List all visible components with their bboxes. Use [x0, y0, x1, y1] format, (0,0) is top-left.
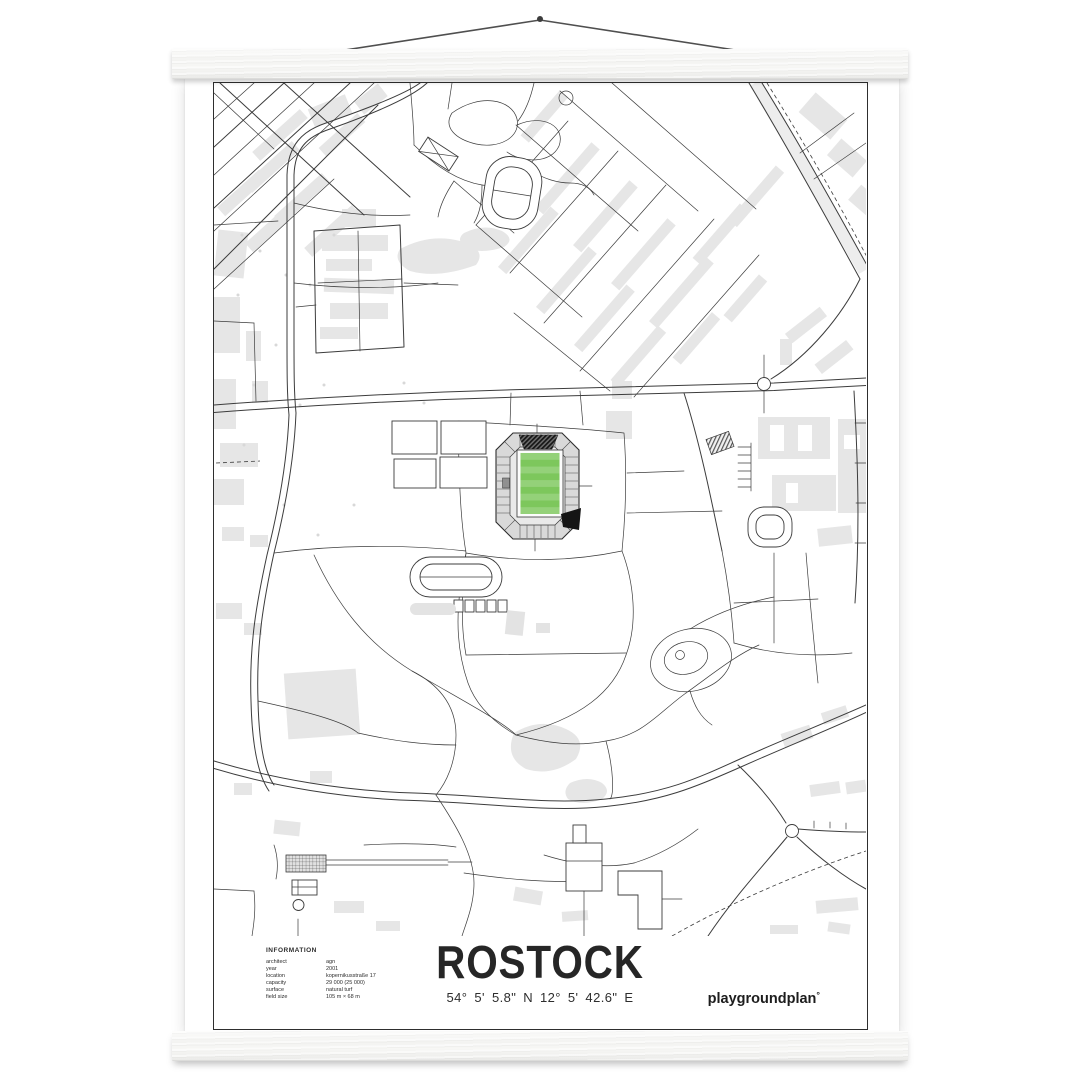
bottom-hanger-bar: [172, 1031, 908, 1061]
velodrome-track: [479, 153, 546, 233]
top-hanger-bar: [172, 49, 908, 79]
sports-court: [394, 459, 436, 488]
stadium-tunnel: [503, 478, 510, 488]
brand-degree-mark: °: [816, 990, 820, 1000]
sports-court: [392, 421, 437, 454]
brand-text: playgroundplan: [708, 991, 817, 1007]
string-line: [332, 20, 748, 52]
caption-area: INFORMATION architect agn year 2001 loca…: [214, 936, 866, 1029]
sports-court: [441, 421, 486, 454]
poster-title: ROSTOCK: [253, 938, 827, 986]
sports-court: [440, 457, 487, 488]
stadium: [496, 424, 592, 551]
brand-logo: playgroundplan°: [708, 991, 820, 1007]
north-stand-hatch: [519, 435, 558, 449]
roundabout-north: [758, 378, 771, 391]
poster: INFORMATION architect agn year 2001 loca…: [185, 78, 899, 1033]
map-svg: [214, 83, 866, 936]
courtyard-oval: [748, 507, 792, 547]
nail-pin: [537, 16, 543, 22]
hatched-building: [706, 431, 734, 454]
wall: INFORMATION architect agn year 2001 loca…: [0, 0, 1080, 1080]
stadium-map: [214, 83, 866, 936]
roundabout-south: [786, 825, 799, 838]
athletics-track: [410, 557, 550, 636]
